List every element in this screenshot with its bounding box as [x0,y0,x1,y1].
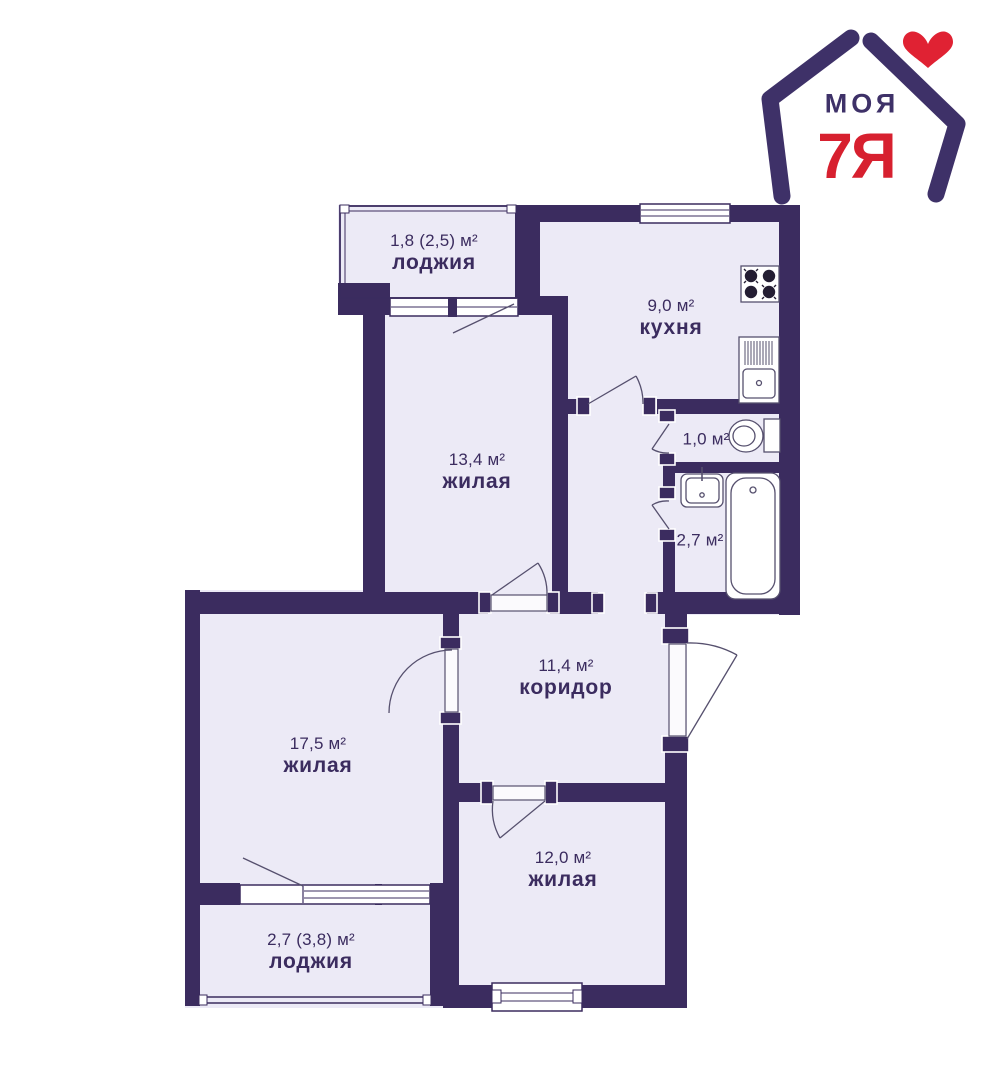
room-name: кухня [639,316,702,339]
logo-word-moya: МОЯ [825,89,900,120]
room-label-corridor: 11,4 м² коридор [519,657,612,699]
entrance-door-slab [669,644,686,736]
living13-door-slab [491,595,547,611]
toilet-icon [729,419,780,452]
logo-word-7ya: 7Я [817,119,895,193]
living17-door-slab [445,649,458,712]
bathtub-icon [726,473,780,599]
room-name: коридор [519,676,612,699]
room-area: 1,0 м² [683,431,730,450]
kitchen-sink-icon [739,337,779,403]
living12-door-slab [493,786,545,800]
room-name: жилая [283,754,352,777]
room-label-bathroom: 2,7 м² [677,532,724,551]
room-area: 13,4 м² [442,451,511,470]
room-name: жилая [442,470,511,493]
room-label-living-12: 12,0 м² жилая [528,849,597,891]
room-label-loggia-bottom: 2,7 (3,8) м² лоджия [267,931,355,973]
room-area: 17,5 м² [283,735,352,754]
room-area: 2,7 м² [677,532,724,551]
living12-window [492,983,582,1011]
room-area: 2,7 (3,8) м² [267,931,355,950]
room-area: 12,0 м² [528,849,597,868]
floorplan-page: МОЯ 7Я 1,8 (2,5) м² лоджия 9,0 м² кухня … [0,0,994,1080]
room-name: лоджия [390,251,478,274]
room-label-living-13: 13,4 м² жилая [442,451,511,493]
room-label-living-17: 17,5 м² жилая [283,735,352,777]
stove-icon [741,266,779,302]
room-name: жилая [528,868,597,891]
room-area: 1,8 (2,5) м² [390,232,478,251]
room-label-wc: 1,0 м² [683,431,730,450]
room-name: лоджия [267,950,355,973]
heart-icon [903,31,953,68]
room-area: 9,0 м² [639,297,702,316]
room-label-kitchen: 9,0 м² кухня [639,297,702,339]
room-label-loggia-top: 1,8 (2,5) м² лоджия [390,232,478,274]
room-area: 11,4 м² [519,657,612,676]
entrance-door [687,643,737,739]
kitchen-window [640,204,730,223]
